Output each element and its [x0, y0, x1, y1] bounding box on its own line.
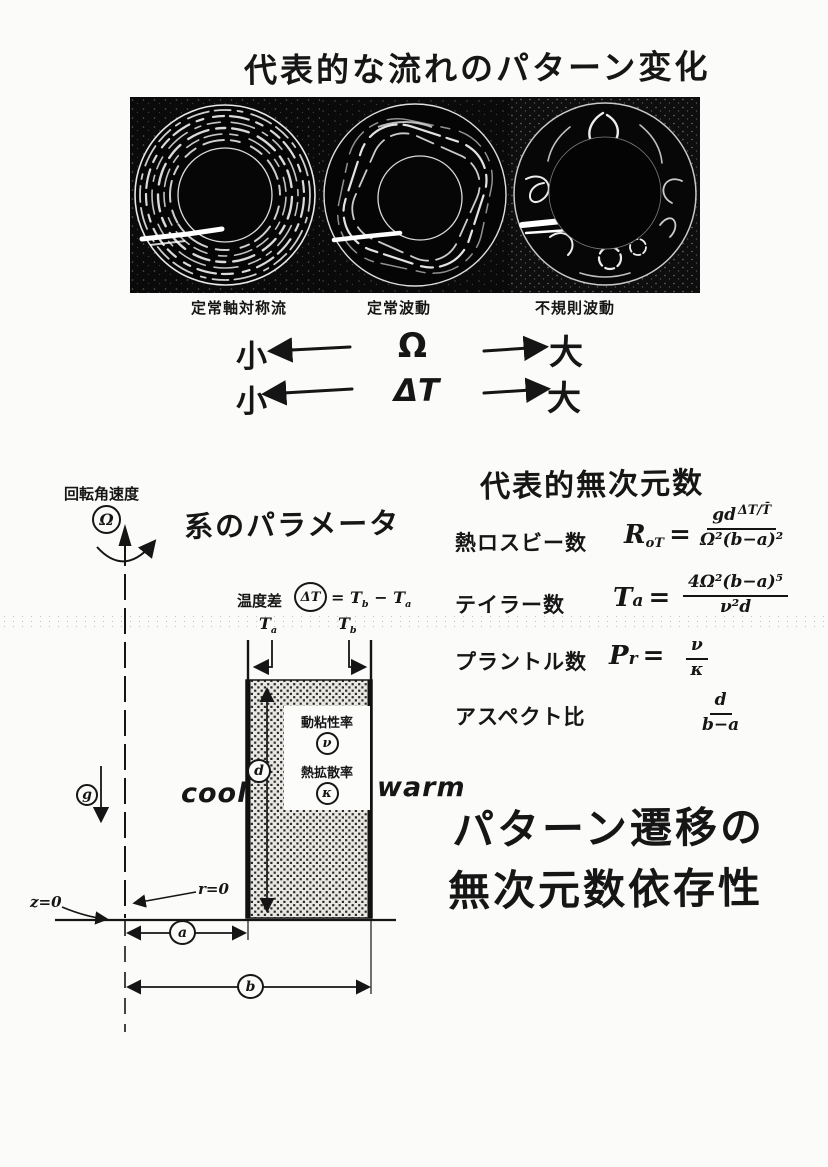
- ta-pointer-arrow: [256, 640, 272, 667]
- taylor-numerator: 4Ω²(b−a)⁵: [683, 573, 788, 597]
- temp-eq-ta: T: [393, 588, 405, 607]
- prandtl-label: プラントル数: [455, 646, 587, 676]
- kappa-symbol: κ: [316, 782, 339, 805]
- prandtl-formula: ν κ: [686, 636, 708, 680]
- arrow-left-omega: [272, 347, 350, 351]
- prandtl-symbol-sub: r: [629, 649, 638, 669]
- radius-a-symbol: a: [169, 920, 196, 945]
- prandtl-symbol-base: P: [609, 641, 629, 671]
- t-inner-base: T: [259, 614, 271, 633]
- page-title: 代表的な流れのパターン変化: [244, 40, 711, 92]
- temp-eq-sub-a: a: [405, 599, 411, 610]
- rossby-numerator: gdΔT/T̄: [707, 506, 776, 530]
- taylor-equals: =: [648, 583, 670, 613]
- arrow-right-deltat: [484, 389, 546, 393]
- flow-photo-steady-wave: [320, 97, 510, 293]
- rossby-num-main: gd: [712, 505, 736, 525]
- temp-eq-minus: −: [374, 588, 387, 607]
- t-outer-sub: b: [350, 625, 357, 636]
- taylor-symbol-sub: a: [632, 591, 643, 611]
- system-parameters-heading: 系のパラメータ: [184, 500, 401, 546]
- prandtl-equals: =: [643, 641, 665, 671]
- flow-photo-irregular: [510, 97, 700, 293]
- cool-label: cool: [181, 778, 247, 809]
- axis-arrowhead: [119, 524, 132, 546]
- omega-symbol: Ω: [92, 505, 121, 534]
- arrow-left-deltat: [266, 389, 352, 394]
- aspect-label: アスペクト比: [455, 701, 586, 731]
- taylor-denominator: ν²d: [720, 597, 751, 618]
- t-inner-label: Ta: [259, 614, 277, 636]
- taylor-label: テイラー数: [455, 589, 565, 619]
- rossby-symbol: RoT =: [624, 520, 691, 551]
- flow-photo-axisymmetric: [130, 97, 320, 293]
- aspect-numerator: d: [710, 691, 732, 715]
- t-outer-base: T: [338, 614, 350, 633]
- temp-eq-sub-b: b: [362, 599, 369, 610]
- radius-b-symbol: b: [237, 974, 264, 999]
- caption-axisymmetric: 定常軸対称流: [191, 297, 287, 318]
- temp-eq-tb: T: [350, 588, 362, 607]
- scale-arrows: [200, 325, 620, 420]
- kinematic-viscosity-label: 動粘性率: [301, 712, 353, 731]
- rossby-denominator: Ω²(b−a)²: [700, 530, 783, 551]
- dimensionless-heading: 代表的無次元数: [480, 458, 705, 506]
- scanned-page: { "page": { "title": "代表的な流れのパターン変化" }, …: [0, 0, 828, 1167]
- rossby-symbol-base: R: [624, 520, 646, 550]
- r0-pointer-arrow: [135, 892, 196, 903]
- footer-line2: 無次元数依存性: [448, 854, 764, 918]
- gravity-symbol: g: [76, 784, 98, 806]
- prandtl-numerator: ν: [686, 636, 708, 660]
- flow-photo-strip: [130, 97, 700, 293]
- prandtl-denominator: κ: [691, 660, 704, 681]
- footer-line1: パターン遷移の: [452, 793, 766, 857]
- t-inner-sub: a: [271, 625, 277, 636]
- nu-symbol: ν: [316, 732, 339, 755]
- aspect-formula: d b−a: [702, 691, 739, 735]
- taylor-symbol: Ta =: [613, 583, 670, 613]
- rossby-label: 熱ロスビー数: [455, 527, 587, 557]
- z0-label: z=0: [30, 893, 62, 911]
- rossby-equals: =: [669, 520, 691, 550]
- caption-steady-wave: 定常波動: [367, 297, 431, 318]
- rotation-rate-label: 回転角速度: [64, 483, 139, 504]
- t-outer-label: Tb: [338, 614, 357, 636]
- temperature-difference-label: 温度差: [237, 590, 282, 611]
- delta-t-symbol: ΔT: [294, 582, 327, 612]
- rossby-symbol-sub: oT: [646, 536, 664, 551]
- fluid-property-box: 動粘性率 ν 熱拡散率 κ: [284, 706, 370, 810]
- taylor-formula: 4Ω²(b−a)⁵ ν²d: [683, 573, 788, 617]
- depth-symbol: d: [247, 759, 271, 783]
- thermal-diffusivity-label: 熱拡散率: [301, 762, 353, 781]
- tb-pointer-arrow: [349, 640, 364, 667]
- caption-irregular: 不規則波動: [535, 297, 615, 318]
- rossby-formula: gdΔT/T̄ Ω²(b−a)²: [700, 506, 783, 550]
- r0-label: r=0: [198, 880, 229, 898]
- z0-pointer-arrow: [62, 907, 106, 919]
- temp-eq-equals: =: [331, 588, 344, 607]
- taylor-symbol-base: T: [613, 583, 632, 613]
- rossby-num-sup: ΔT/T̄: [738, 502, 771, 517]
- temperature-equation: = Tb − Ta: [331, 588, 411, 610]
- aspect-denominator: b−a: [702, 715, 739, 736]
- prandtl-symbol: Pr =: [609, 641, 664, 671]
- arrow-right-omega: [484, 347, 544, 351]
